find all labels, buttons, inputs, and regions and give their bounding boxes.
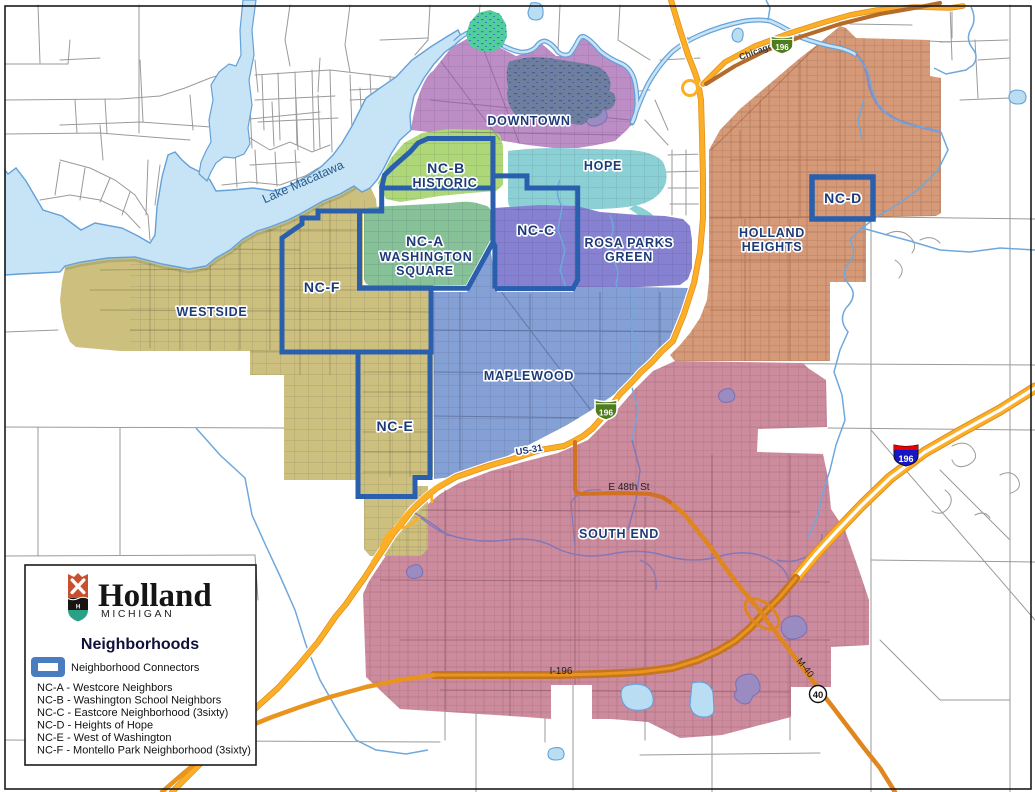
svg-text:DOWNTOWN: DOWNTOWN bbox=[487, 114, 570, 128]
svg-text:40: 40 bbox=[813, 690, 824, 701]
svg-text:Neighborhoods: Neighborhoods bbox=[81, 636, 199, 653]
svg-text:NC-B: NC-B bbox=[427, 160, 465, 176]
svg-text:ROSA PARKS: ROSA PARKS bbox=[585, 236, 674, 250]
svg-text:E 48th St: E 48th St bbox=[608, 482, 649, 493]
svg-text:SOUTH END: SOUTH END bbox=[579, 527, 659, 541]
svg-text:196: 196 bbox=[898, 454, 913, 464]
svg-text:196: 196 bbox=[775, 43, 789, 52]
svg-text:HOPE: HOPE bbox=[584, 159, 622, 173]
svg-text:NC-E: NC-E bbox=[376, 418, 413, 434]
svg-text:196: 196 bbox=[599, 408, 613, 418]
svg-text:WESTSIDE: WESTSIDE bbox=[177, 305, 248, 319]
svg-text:SQUARE: SQUARE bbox=[396, 264, 454, 278]
svg-text:Neighborhood Connectors: Neighborhood Connectors bbox=[71, 662, 200, 674]
svg-text:HOLLAND: HOLLAND bbox=[739, 226, 805, 240]
svg-text:NC-C: NC-C bbox=[517, 222, 555, 238]
svg-text:WASHINGTON: WASHINGTON bbox=[380, 250, 473, 264]
svg-text:NC-D - Heights of Hope: NC-D - Heights of Hope bbox=[37, 720, 153, 732]
svg-text:NC-E - West of Washington: NC-E - West of Washington bbox=[37, 732, 172, 744]
svg-text:NC-A - Westcore Neighbors: NC-A - Westcore Neighbors bbox=[37, 682, 173, 694]
svg-text:NC-D: NC-D bbox=[824, 190, 862, 206]
svg-text:NC-F - Montello Park Neighborh: NC-F - Montello Park Neighborhood (3sixt… bbox=[37, 745, 251, 757]
svg-text:HEIGHTS: HEIGHTS bbox=[742, 240, 802, 254]
svg-text:NC-A: NC-A bbox=[406, 233, 444, 249]
svg-text:HISTORIC: HISTORIC bbox=[412, 176, 477, 190]
svg-text:GREEN: GREEN bbox=[605, 250, 653, 264]
svg-text:NC-C - Eastcore Neighborhood (: NC-C - Eastcore Neighborhood (3sixty) bbox=[37, 707, 228, 719]
svg-text:NC-B - Washington School Neigh: NC-B - Washington School Neighbors bbox=[37, 695, 222, 707]
svg-text:MAPLEWOOD: MAPLEWOOD bbox=[484, 369, 574, 383]
svg-text:I-196: I-196 bbox=[550, 666, 573, 677]
svg-text:NC-F: NC-F bbox=[304, 279, 340, 295]
svg-text:H: H bbox=[76, 605, 80, 611]
svg-text:MICHIGAN: MICHIGAN bbox=[101, 608, 174, 620]
